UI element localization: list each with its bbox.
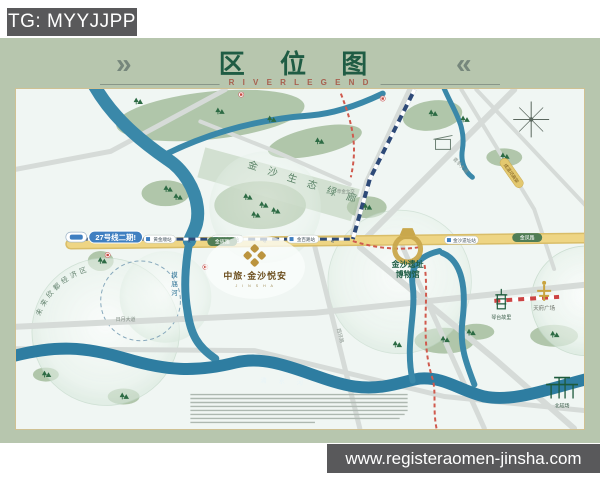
website-watermark: www.registeraomen-jinsha.com [327,444,600,473]
location-map: 27号线二期! 黄金顺站 黄金路站 金百路站 金沙遗址站 « « « 金辉路 金… [15,88,585,430]
svg-text:27号线二期!: 27号线二期! [95,232,136,242]
modi-river-label: 摸 底 河 [171,270,178,297]
train-icon [70,235,83,240]
page-subtitle: R I V E R L E G E N D [220,78,381,87]
museum-label-line2: 博物馆 [396,269,420,279]
svg-text:河: 河 [171,289,178,297]
svg-text:金沙遗址站: 金沙遗址站 [453,237,476,244]
museum-label-line1: 金沙遗址 [391,259,424,269]
map-canvas: 27号线二期! 黄金顺站 黄金路站 金百路站 金沙遗址站 « « « 金辉路 金… [16,89,584,429]
line27-badge: 27号线二期! [66,231,143,243]
project-latin: J I N S H A [235,284,274,288]
qintai-label: 琴台故里 [491,314,511,321]
svg-text:黄金顺站: 黄金顺站 [153,236,172,243]
project-marker: 中旅·金沙悦安 J I N S H A [205,235,305,299]
page-title: 区 位 图 [0,44,600,81]
beijiaochang-label: 北较场 [555,402,570,409]
svg-text:底: 底 [171,279,178,288]
tianfu-label: 天府广场 [533,304,555,312]
svg-text:摸: 摸 [171,270,178,279]
telegram-watermark: TG: MYYJJPP [7,8,137,36]
caojin-label: 草金立交 [337,188,355,195]
riyue-road-label: 日月大道 [116,316,136,323]
project-name: 中旅·金沙悦安 [223,270,287,281]
svg-text:金百路站: 金百路站 [297,236,316,243]
svg-text:金凤路: 金凤路 [520,235,535,242]
